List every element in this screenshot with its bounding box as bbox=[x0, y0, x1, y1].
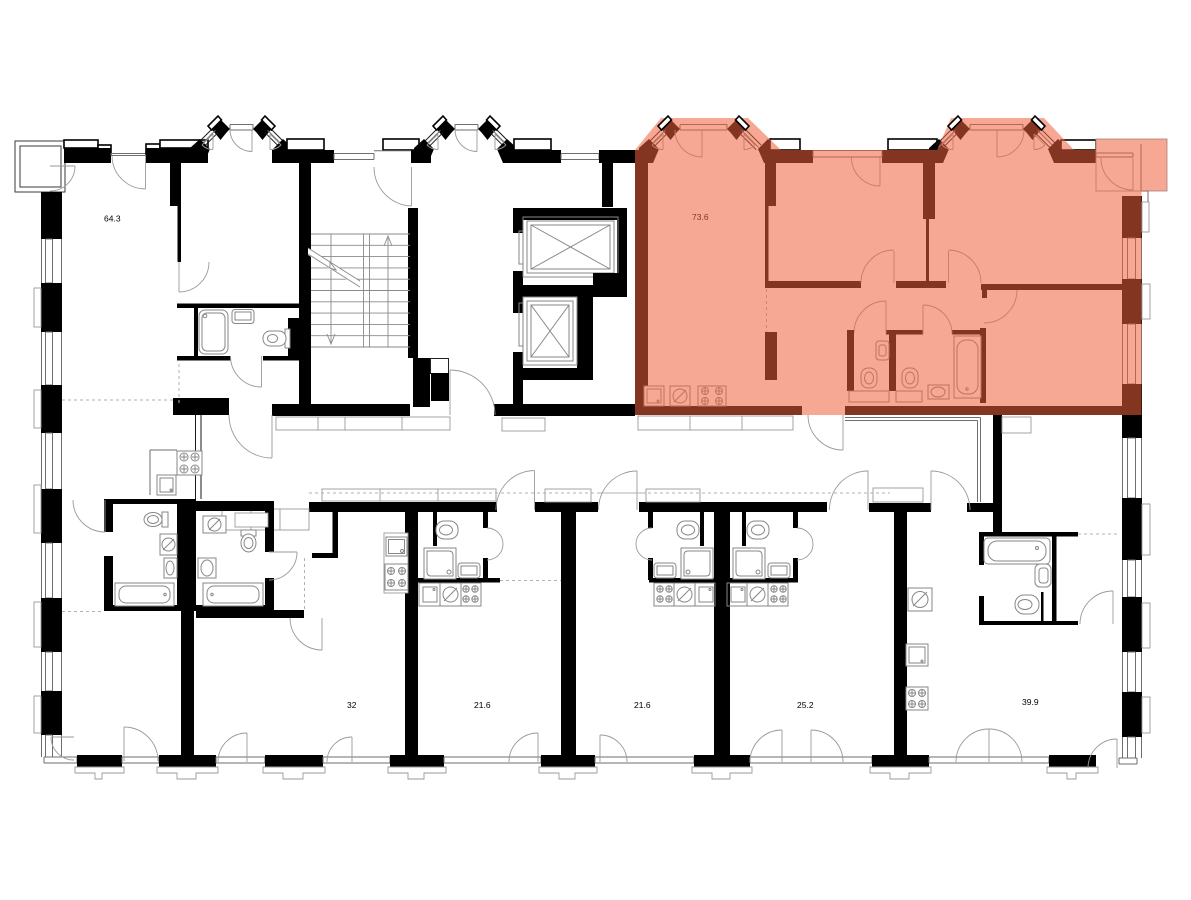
svg-text:21.6: 21.6 bbox=[634, 700, 651, 710]
svg-text:21.6: 21.6 bbox=[474, 700, 491, 710]
svg-text:64.3: 64.3 bbox=[104, 214, 121, 224]
svg-text:25.2: 25.2 bbox=[797, 700, 814, 710]
svg-text:39.9: 39.9 bbox=[1022, 697, 1039, 707]
svg-text:32: 32 bbox=[347, 700, 357, 710]
